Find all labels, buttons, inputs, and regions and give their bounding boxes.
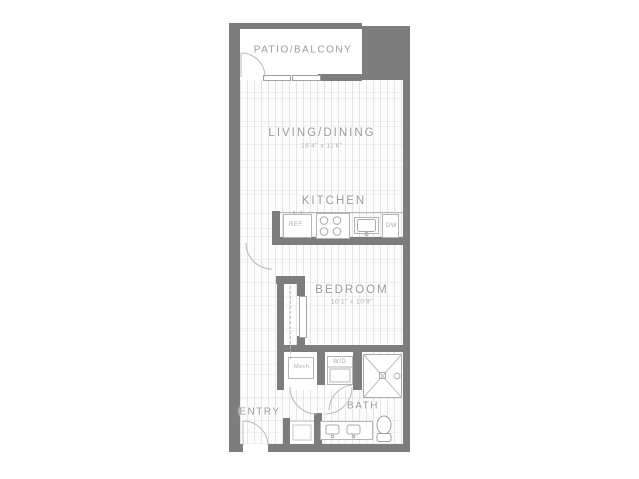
entry-label: ENTRY — [239, 407, 280, 418]
laundry-label: W/D — [333, 359, 346, 365]
shower-head-icon — [394, 373, 400, 379]
toilet — [377, 416, 391, 442]
bedroom-label: BEDROOM — [315, 284, 388, 296]
vanity-faucet-right — [352, 435, 355, 438]
mech-label: Mech — [294, 364, 309, 370]
bath-label: BATH — [347, 401, 379, 412]
living-dims: 16'4" x 11'6" — [301, 143, 343, 150]
patio-door-arc — [241, 53, 265, 77]
vanity-sink-left — [326, 425, 339, 434]
mech-door-arc — [290, 387, 317, 414]
vanity-faucet-left — [331, 435, 334, 438]
fixture-symbols — [0, 0, 639, 479]
sink-basin — [358, 220, 376, 232]
niche-shelf — [293, 425, 311, 440]
sink-faucet — [365, 233, 368, 236]
stove-burners — [320, 217, 341, 236]
vanity-sink-right — [347, 425, 360, 434]
dishwasher-label: DW — [386, 223, 397, 229]
bedroom-dims: 10'1" x 10'8" — [331, 299, 373, 306]
entry-door-arc — [243, 421, 268, 446]
refrigerator-label: REF. — [289, 222, 304, 228]
shower-glass-x — [363, 354, 402, 398]
hall-door-arc — [246, 243, 272, 269]
kitchen-label: KITCHEN — [302, 195, 366, 207]
floor-plan: PATIO/BALCONY LIVING/DINING 16'4" x 11'6… — [0, 0, 639, 479]
washer-dryer-front — [330, 369, 350, 382]
living-label: LIVING/DINING — [268, 127, 375, 139]
refrigerator-handles — [294, 211, 301, 215]
patio-label: PATIO/BALCONY — [254, 45, 353, 56]
